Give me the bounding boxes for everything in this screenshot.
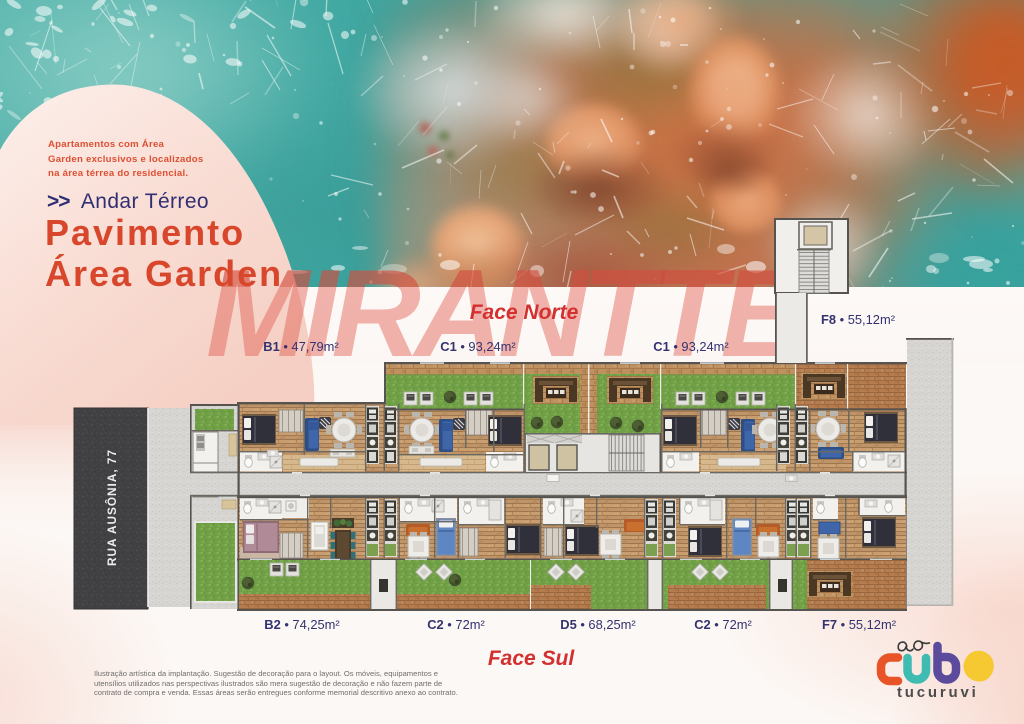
svg-text:RUA AUSÔNIA, 77: RUA AUSÔNIA, 77 <box>105 449 119 566</box>
svg-text:tucuruvi: tucuruvi <box>897 684 979 701</box>
